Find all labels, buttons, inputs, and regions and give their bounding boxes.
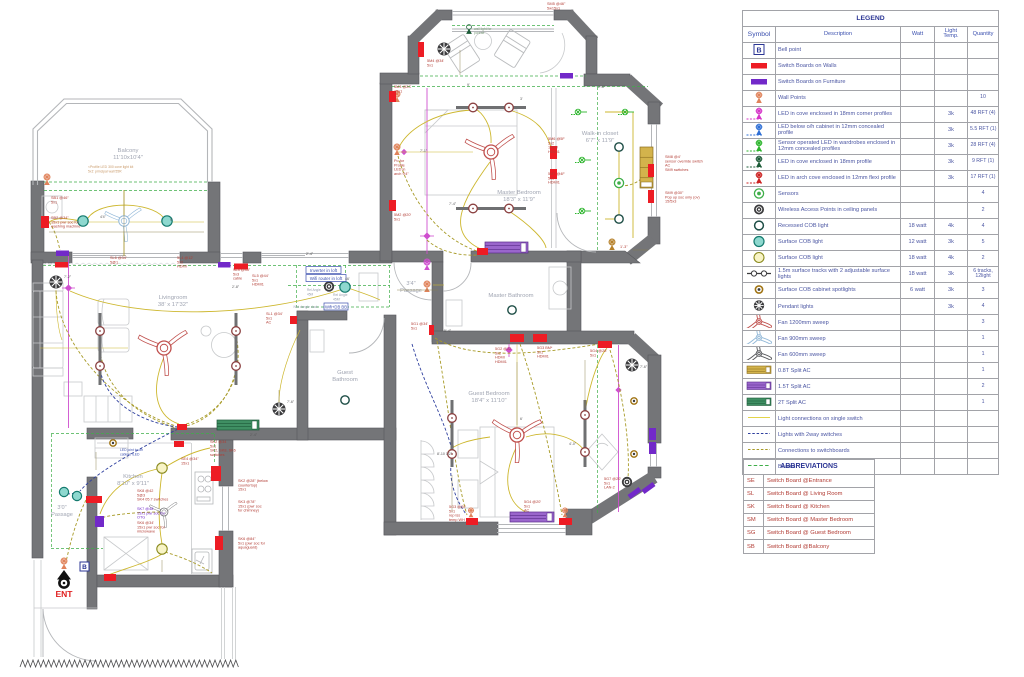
svg-text:Bathroom: Bathroom xyxy=(332,377,358,383)
svg-text:HDMI: HDMI xyxy=(177,265,187,269)
svg-text:18'3" x 11'9": 18'3" x 11'9" xyxy=(503,197,535,203)
svg-text:arch 9'4": arch 9'4" xyxy=(394,172,409,176)
svg-text:9': 9' xyxy=(467,83,470,87)
svg-text:switches: switches xyxy=(210,453,225,457)
svg-text:HDMI1: HDMI1 xyxy=(548,150,560,154)
svg-text:washing machine: washing machine xyxy=(51,225,80,229)
svg-text:Guest: Guest xyxy=(337,370,353,376)
svg-text:11'10x10'4": 11'10x10'4" xyxy=(113,155,143,161)
svg-text:sensor override switch: sensor override switch xyxy=(665,159,703,163)
svg-text:Net dongle dock: Net dongle dock xyxy=(293,305,318,309)
svg-text:Wifi router in loft: Wifi router in loft xyxy=(310,276,343,281)
svg-text:ENT: ENT xyxy=(56,589,74,599)
svg-text:5x1: 5x1 xyxy=(427,63,433,67)
svg-text:8'-10 1/2": 8'-10 1/2" xyxy=(437,452,453,456)
svg-text:4'4": 4'4" xyxy=(100,215,107,219)
svg-text:HDMI1: HDMI1 xyxy=(495,360,507,364)
svg-text:15x1: 15x1 xyxy=(394,89,402,93)
svg-text:microwave: microwave xyxy=(137,530,155,534)
svg-text:5x1: 5x1 xyxy=(590,353,596,357)
svg-text:HDMI1: HDMI1 xyxy=(252,283,264,287)
svg-text:7'-1": 7'-1" xyxy=(420,149,428,153)
svg-text:2'-6": 2'-6" xyxy=(598,85,606,89)
svg-text:AC: AC xyxy=(524,509,530,513)
svg-text:Walk-in closet: Walk-in closet xyxy=(582,131,619,137)
svg-text:8'10" x 9'11": 8'10" x 9'11" xyxy=(117,481,149,487)
svg-text:Wifi+DB BB: Wifi+DB BB xyxy=(325,305,347,310)
svg-text:2'-8": 2'-8" xyxy=(232,285,240,289)
svg-text:5x1: 5x1 xyxy=(394,217,400,221)
svg-text:6'7" x 11'9": 6'7" x 11'9" xyxy=(586,138,615,144)
svg-text:7'-6": 7'-6" xyxy=(287,400,295,404)
svg-text:38' x 17'32": 38' x 17'32" xyxy=(158,302,188,308)
svg-text:temp WH: temp WH xyxy=(449,518,465,522)
svg-text:15/5x3: 15/5x3 xyxy=(665,200,676,204)
svg-text:B: B xyxy=(82,564,87,571)
svg-text:B: B xyxy=(756,47,761,54)
svg-text:Livingroom: Livingroom xyxy=(159,295,188,301)
svg-text:3': 3' xyxy=(520,97,523,101)
svg-text:Passage: Passage xyxy=(400,288,422,294)
svg-text:Kitchen: Kitchen xyxy=(123,474,143,480)
svg-text:5x1' principal wall 55R: 5x1' principal wall 55R xyxy=(88,169,122,173)
svg-text:aquaguard): aquaguard) xyxy=(238,546,258,550)
svg-text:LAN-2: LAN-2 xyxy=(604,486,615,490)
svg-text:for chimney): for chimney) xyxy=(238,509,260,513)
svg-text:cable: cable xyxy=(233,277,242,281)
svg-text:7'-6": 7'-6" xyxy=(640,365,648,369)
svg-text:Guest Bedroom: Guest Bedroom xyxy=(468,391,509,397)
svg-text:6': 6' xyxy=(520,417,523,421)
svg-text:HDMI1: HDMI1 xyxy=(548,181,560,185)
svg-text:Balcony: Balcony xyxy=(118,148,139,154)
svg-text:3'0": 3'0" xyxy=(57,505,66,511)
svg-text:7'-4": 7'-4" xyxy=(449,202,457,206)
svg-text:cabinet ILED: cabinet ILED xyxy=(120,452,140,456)
svg-text:5'-4": 5'-4" xyxy=(444,329,452,333)
svg-text:2'-4": 2'-4" xyxy=(306,252,314,256)
svg-text:18'4" x 11'10": 18'4" x 11'10" xyxy=(471,398,506,404)
svg-text:45M': 45M' xyxy=(333,297,341,301)
svg-text:4'-0": 4'-0" xyxy=(569,442,577,446)
svg-text:15x1: 15x1 xyxy=(181,461,189,465)
svg-text:3'4": 3'4" xyxy=(406,281,415,287)
svg-text:OTG: OTG xyxy=(137,516,145,520)
svg-text:Master Bathroom: Master Bathroom xyxy=(488,293,533,299)
svg-text:9': 9' xyxy=(170,218,173,222)
svg-text:Passage: Passage xyxy=(51,512,73,518)
svg-text:5w15x1: 5w15x1 xyxy=(547,6,560,10)
svg-text:5x1: 5x1 xyxy=(411,326,417,330)
svg-text:SM9 switches: SM9 switches xyxy=(665,168,689,172)
svg-text:45M: 45M xyxy=(307,292,314,296)
svg-text:46': 46' xyxy=(345,277,350,281)
svg-text:5x1: 5x1 xyxy=(51,200,57,204)
svg-text:HDMI1: HDMI1 xyxy=(537,355,549,359)
svg-text:Master Bedroom: Master Bedroom xyxy=(497,190,541,196)
svg-text:15x1: 15x1 xyxy=(238,488,246,492)
svg-text:1'-3": 1'-3" xyxy=(620,245,628,249)
svg-text:5@1: 5@1 xyxy=(110,260,118,264)
svg-text:2'-4": 2'-4" xyxy=(250,433,258,437)
svg-text:Inverter in loft: Inverter in loft xyxy=(310,268,338,273)
svg-text:portrait: portrait xyxy=(474,31,484,35)
svg-text:AC: AC xyxy=(266,321,272,325)
svg-text:SK4 05.7 switches: SK4 05.7 switches xyxy=(137,498,168,502)
svg-text:7'-2": 7'-2" xyxy=(64,275,72,279)
